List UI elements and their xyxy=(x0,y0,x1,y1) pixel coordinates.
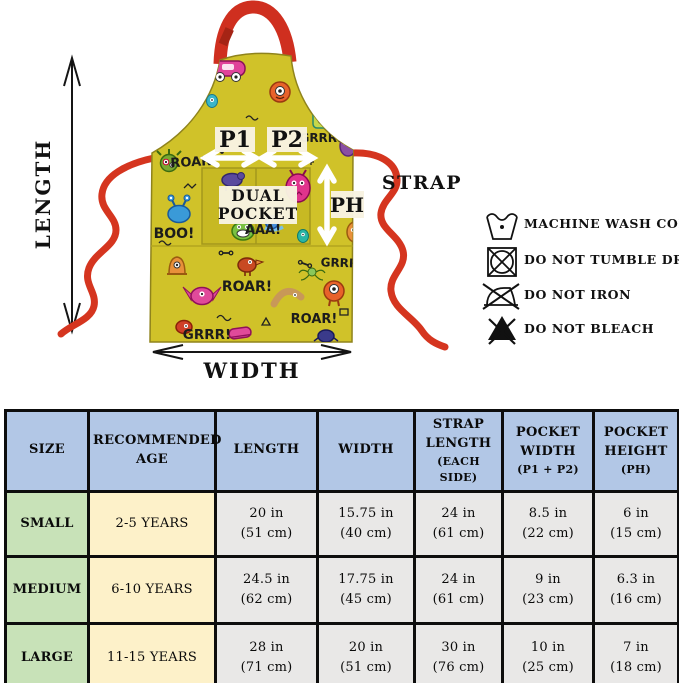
fabric-text: BOO! xyxy=(154,226,195,242)
monster-cyclops xyxy=(270,82,290,102)
col-header-pocket-height: POCKET HEIGHT(PH) xyxy=(594,411,679,492)
col-header-size: SIZE xyxy=(6,411,89,492)
do-not-bleach-icon xyxy=(488,316,516,344)
ph-label-box: PH xyxy=(330,191,364,218)
col-header-length: LENGTH xyxy=(216,411,318,492)
dual-pocket-label-line2: POCKET xyxy=(218,204,298,223)
p1-label: P1 xyxy=(219,127,251,153)
dual-pocket-label-line1: DUAL xyxy=(231,186,284,205)
cell-pocket-height: 7 in (18 cm) xyxy=(594,624,679,683)
machine-wash-cold-icon xyxy=(487,214,517,239)
apron-dimension-diagram: LENGTH xyxy=(0,0,679,404)
cell-length: 20 in (51 cm) xyxy=(216,492,318,557)
cell-strap: 24 in (61 cm) xyxy=(415,492,503,557)
care-label: DO NOT BLEACH xyxy=(524,321,654,336)
col-header-pocket-width: POCKET WIDTH(P1 + P2) xyxy=(503,411,594,492)
fabric-text: GRRR! xyxy=(183,327,231,343)
p2-label: P2 xyxy=(271,127,303,153)
table-row-large: LARGE 11-15 YEARS 28 in (71 cm) 20 in (5… xyxy=(6,624,679,683)
cell-length: 28 in (71 cm) xyxy=(216,624,318,683)
size-chart-table: SIZE RECOMMENDED AGE LENGTH WIDTH STRAP … xyxy=(4,409,679,683)
dual-pocket-label-box: DUAL POCKET xyxy=(218,186,298,224)
width-arrow xyxy=(153,345,351,359)
cell-pocket-width: 9 in (23 cm) xyxy=(503,557,594,624)
care-label: DO NOT IRON xyxy=(524,287,631,302)
care-label: DO NOT TUMBLE DRY xyxy=(524,252,679,267)
fabric-text: GRRR! xyxy=(320,255,364,270)
cell-size: MEDIUM xyxy=(6,557,89,624)
col-header-strap-length: STRAP LENGTH(EACH SIDE) xyxy=(415,411,503,492)
table-row-small: SMALL 2-5 YEARS 20 in (51 cm) 15.75 in (… xyxy=(6,492,679,557)
monster-jar xyxy=(313,106,331,128)
do-not-iron-icon xyxy=(483,284,519,309)
do-not-tumble-dry-icon xyxy=(488,248,516,276)
length-label: LENGTH xyxy=(31,139,55,249)
cell-length: 24.5 in (62 cm) xyxy=(216,557,318,624)
fabric-text: ROAR! xyxy=(291,312,338,327)
cell-strap: 24 in (61 cm) xyxy=(415,557,503,624)
cell-size: LARGE xyxy=(6,624,89,683)
strap-label: STRAP xyxy=(382,172,462,194)
col-header-age: RECOMMENDED AGE xyxy=(89,411,216,492)
length-arrow xyxy=(64,58,80,331)
table-row-medium: MEDIUM 6-10 YEARS 24.5 in (62 cm) 17.75 … xyxy=(6,557,679,624)
cell-pocket-height: 6.3 in (16 cm) xyxy=(594,557,679,624)
cell-width: 15.75 in (40 cm) xyxy=(318,492,415,557)
ph-label: PH xyxy=(330,193,364,217)
product-infographic: LENGTH xyxy=(0,0,679,683)
monster-blob xyxy=(207,95,218,108)
cell-strap: 30 in (76 cm) xyxy=(415,624,503,683)
col-header-width: WIDTH xyxy=(318,411,415,492)
cell-age: 2-5 YEARS xyxy=(89,492,216,557)
care-label: MACHINE WASH COLD xyxy=(524,216,679,231)
monster-teal xyxy=(298,230,309,243)
width-label: WIDTH xyxy=(202,358,300,383)
cell-width: 20 in (51 cm) xyxy=(318,624,415,683)
monster-orange-edge xyxy=(347,222,363,242)
cell-size: SMALL xyxy=(6,492,89,557)
cell-age: 11-15 YEARS xyxy=(89,624,216,683)
cell-pocket-width: 8.5 in (22 cm) xyxy=(503,492,594,557)
care-instructions: MACHINE WASH COLD DO NOT TUMBLE DRY DO N… xyxy=(483,214,679,344)
cell-pocket-height: 6 in (15 cm) xyxy=(594,492,679,557)
cell-width: 17.75 in (45 cm) xyxy=(318,557,415,624)
cell-pocket-width: 10 in (25 cm) xyxy=(503,624,594,683)
fabric-text: ROAR! xyxy=(222,279,272,295)
p2-label-box: P2 xyxy=(267,127,307,153)
header-row: SIZE RECOMMENDED AGE LENGTH WIDTH STRAP … xyxy=(6,411,679,492)
fabric-text: AAA! xyxy=(245,223,281,238)
p1-label-box: P1 xyxy=(215,127,255,153)
cell-age: 6-10 YEARS xyxy=(89,557,216,624)
